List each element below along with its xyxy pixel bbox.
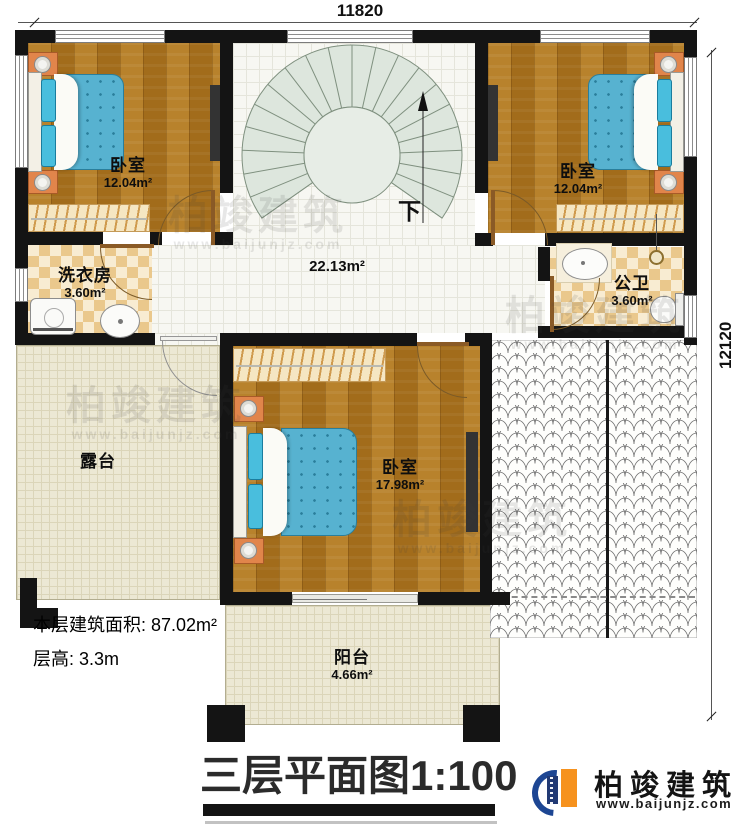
nightstand xyxy=(654,170,684,194)
dimension-line xyxy=(18,22,697,23)
window xyxy=(15,55,28,168)
floor-area-note: 本层建筑面积: 87.02m² xyxy=(33,608,217,642)
lamp-icon xyxy=(660,56,677,73)
brand-logo-icon xyxy=(532,764,590,822)
bed-blanket xyxy=(54,74,78,170)
stairs xyxy=(233,43,475,248)
wall-segment xyxy=(233,333,417,346)
nightstand xyxy=(28,170,58,194)
title-scale: 1:100 xyxy=(410,752,517,799)
title-underline-thin xyxy=(205,821,497,824)
column xyxy=(207,705,245,742)
door-leaf xyxy=(211,190,215,245)
window xyxy=(287,30,413,43)
bed-blanket xyxy=(634,74,658,170)
lamp-icon xyxy=(240,542,257,559)
stairs-down-label: 下 xyxy=(398,192,421,226)
building-tower-icon xyxy=(547,776,558,804)
tv xyxy=(488,85,498,161)
title-text: 三层平面图 xyxy=(200,752,410,799)
wall-segment xyxy=(15,232,103,245)
window xyxy=(684,57,697,157)
dimension-height-label: 12120 xyxy=(716,300,736,390)
bed-headboard xyxy=(28,72,42,172)
door-leaf xyxy=(417,342,469,346)
wardrobe xyxy=(556,204,684,232)
room-label-bedroom-tl: 卧室 12.04m² xyxy=(92,156,164,190)
dimension-line xyxy=(711,50,712,720)
wall-segment xyxy=(213,232,233,245)
wall-segment xyxy=(538,247,550,281)
wall-segment xyxy=(475,43,488,193)
room-label-balcony: 阳台 4.66m² xyxy=(312,648,392,682)
window xyxy=(55,30,165,43)
nightstand xyxy=(234,396,264,422)
sink-drain xyxy=(581,261,585,265)
shower-icon xyxy=(649,250,664,265)
tv xyxy=(210,85,220,161)
wardrobe xyxy=(233,348,386,382)
room-label-bathroom: 公卫 3.60m² xyxy=(596,274,668,308)
wall-segment xyxy=(220,43,233,193)
bed-blanket xyxy=(263,428,287,536)
wall-segment xyxy=(220,333,233,605)
door-leaf xyxy=(491,190,495,245)
building-tower-icon xyxy=(561,769,577,807)
wall-segment xyxy=(465,333,492,346)
sink-drain xyxy=(118,319,123,324)
roof xyxy=(490,340,697,638)
shower-hose xyxy=(656,214,657,254)
roof-ridge-line xyxy=(606,340,609,638)
nightstand xyxy=(234,538,264,564)
pillow xyxy=(248,433,263,480)
washing-machine-icon xyxy=(30,298,76,335)
door-leaf xyxy=(550,276,554,332)
title-underline xyxy=(203,804,495,816)
tv xyxy=(466,432,478,532)
pillow xyxy=(41,125,56,167)
wardrobe xyxy=(28,204,150,232)
stairs-landing xyxy=(304,107,400,203)
room-label-terrace: 露台 xyxy=(58,452,138,472)
room-label-laundry: 洗衣房 3.60m² xyxy=(42,266,128,300)
lamp-icon xyxy=(34,56,51,73)
wall-segment xyxy=(418,592,510,605)
hall-area-label: 22.13m² xyxy=(292,258,382,275)
lamp-icon xyxy=(240,400,257,417)
door-leaf xyxy=(160,336,217,341)
lamp-icon xyxy=(660,174,677,191)
toilet-tank xyxy=(675,293,684,326)
washer-panel xyxy=(33,328,73,331)
window xyxy=(684,295,697,338)
bed-mattress xyxy=(281,428,357,536)
column xyxy=(463,705,500,742)
pillow xyxy=(657,79,672,122)
window xyxy=(540,30,650,43)
dimension-width-label: 11820 xyxy=(290,1,430,21)
wall-segment xyxy=(480,346,492,605)
floor-height-note: 层高: 3.3m xyxy=(33,642,217,676)
sink-icon xyxy=(100,304,140,338)
eave-dashed-line xyxy=(492,596,695,598)
sliding-door xyxy=(292,594,418,603)
pillow xyxy=(248,484,263,529)
room-label-bedroom-main: 卧室 17.98m² xyxy=(358,458,442,492)
brand-website: www.baijunjz.com xyxy=(596,796,732,811)
floor-plan: 下 xyxy=(0,0,750,833)
door-leaf xyxy=(100,244,154,248)
window xyxy=(15,268,28,302)
room-label-bedroom-tr: 卧室 12.04m² xyxy=(542,162,614,196)
wall-segment xyxy=(220,592,292,605)
lamp-icon xyxy=(34,174,51,191)
bed-headboard xyxy=(670,72,684,172)
bed-headboard xyxy=(233,426,247,538)
floor-info: 本层建筑面积: 87.02m² 层高: 3.3m xyxy=(33,608,217,676)
page-title: 三层平面图1:100 xyxy=(200,742,510,803)
washer-drum-icon xyxy=(44,308,64,328)
pillow xyxy=(657,125,672,167)
pillow xyxy=(41,79,56,122)
